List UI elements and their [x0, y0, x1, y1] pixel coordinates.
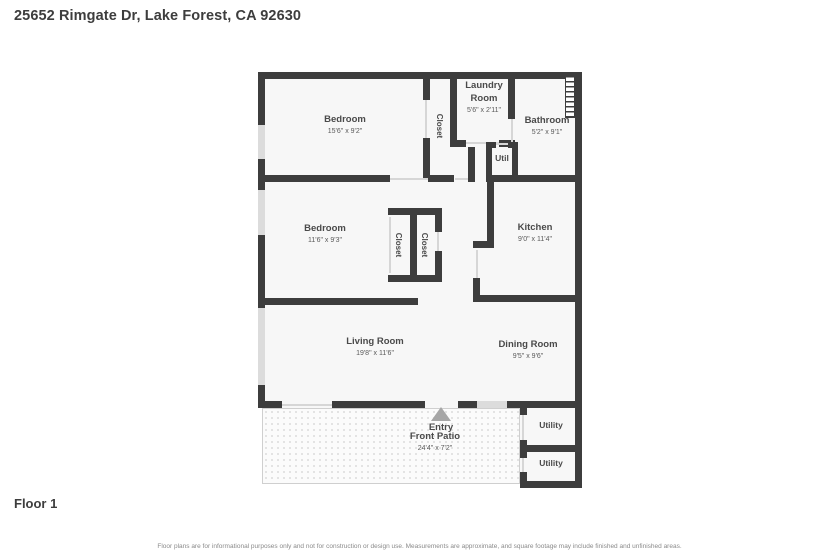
- room-dims: 24'4" x 7'2": [383, 444, 487, 453]
- disclaimer-text: Floor plans are for informational purpos…: [0, 543, 839, 550]
- wall-hall-jamb: [468, 147, 475, 182]
- wall-kitchen-left: [487, 182, 494, 248]
- window: [258, 308, 265, 385]
- bathroom-window-hatch: [565, 75, 575, 118]
- room-utility-2: Utility: [528, 458, 574, 469]
- page-title: 25652 Rimgate Dr, Lake Forest, CA 92630: [14, 8, 301, 24]
- room-kitchen: Kitchen 9'0" x 11'4": [503, 222, 567, 244]
- room-name: Utility: [528, 420, 574, 431]
- room-bedroom-2: Bedroom 11'6" x 9'3": [273, 223, 377, 245]
- room-name: Closet: [420, 233, 429, 257]
- room-entry: Entry: [415, 422, 467, 435]
- room-dims: 11'6" x 9'3": [273, 236, 377, 245]
- entry-arrow-icon: [431, 407, 451, 421]
- room-name: Bedroom: [273, 223, 377, 236]
- wall-bedroom-divider: [258, 175, 390, 182]
- door-opening: [522, 415, 524, 440]
- wall-closets-divider: [410, 208, 417, 282]
- wall-utility-left-c: [520, 472, 527, 488]
- wall-kitchen-foot: [473, 241, 494, 248]
- room-closet-right: Closet: [417, 233, 435, 257]
- door-opening: [425, 100, 427, 138]
- door-opening: [390, 178, 428, 180]
- room-living-room: Living Room 19'8" x 11'6": [323, 336, 427, 358]
- door-opening: [476, 250, 478, 278]
- wall-closet1-left-a: [423, 72, 430, 100]
- room-name: Dining Room: [489, 339, 567, 352]
- wall-bottom-right: [520, 481, 582, 488]
- room-name: Laundry Room: [456, 80, 512, 106]
- window: [258, 125, 265, 159]
- room-bedroom-1: Bedroom 15'6" x 9'2": [293, 114, 397, 136]
- room-dims: 5'6" x 2'11": [456, 106, 512, 115]
- door-opening: [496, 143, 508, 145]
- wall-hall-piece: [428, 175, 454, 182]
- wall-closet1-left-b: [423, 138, 430, 178]
- room-bathroom: Bathroom 5'2" x 9'1": [517, 115, 577, 137]
- room-utility-1: Utility: [528, 420, 574, 431]
- wall-bedroom2-bottom: [258, 298, 418, 305]
- floor-label: Floor 1: [14, 496, 57, 511]
- wall-top: [258, 72, 582, 79]
- room-dims: 15'6" x 9'2": [293, 127, 397, 136]
- room-closet-left: Closet: [391, 233, 409, 257]
- window: [258, 190, 265, 235]
- room-dims: 9'5" x 9'6": [489, 352, 567, 361]
- room-name: Entry: [415, 422, 467, 435]
- room-closet-top: Closet: [432, 114, 450, 138]
- wall-front-b: [332, 401, 425, 408]
- room-name: Kitchen: [503, 222, 567, 235]
- wall-kitchen-top: [486, 175, 582, 182]
- room-name: Closet: [435, 114, 444, 138]
- wall-closets-right-a: [435, 208, 442, 232]
- wall-laundry-bottom-a: [450, 140, 466, 147]
- wall-front-d: [507, 401, 582, 408]
- wall-kitchen-dining: [473, 295, 582, 302]
- wall-utility-divider: [520, 445, 582, 452]
- wall-front-c: [458, 401, 478, 408]
- room-name: Living Room: [323, 336, 427, 349]
- door-opening: [455, 178, 468, 180]
- room-name: Bathroom: [517, 115, 577, 128]
- window: [477, 401, 507, 408]
- door-opening: [522, 458, 524, 472]
- room-dims: 9'0" x 11'4": [503, 235, 567, 244]
- room-name: Closet: [394, 233, 403, 257]
- room-name: Util: [482, 153, 522, 164]
- room-dims: 5'2" x 9'1": [517, 128, 577, 137]
- wall-closets-right-b: [435, 251, 442, 282]
- room-dining-room: Dining Room 9'5" x 9'6": [489, 339, 567, 361]
- door-opening: [282, 404, 332, 406]
- room-dims: 19'8" x 11'6": [323, 349, 427, 358]
- room-util: Util: [482, 153, 522, 164]
- floorplan-page: 25652 Rimgate Dr, Lake Forest, CA 92630: [0, 0, 839, 560]
- room-name: Bedroom: [293, 114, 397, 127]
- room-name: Utility: [528, 458, 574, 469]
- wall-utility-left-a: [520, 401, 527, 415]
- door-opening: [437, 232, 439, 251]
- door-opening: [511, 119, 513, 143]
- room-laundry: Laundry Room 5'6" x 2'11": [456, 80, 512, 115]
- wall-front-a: [258, 401, 282, 408]
